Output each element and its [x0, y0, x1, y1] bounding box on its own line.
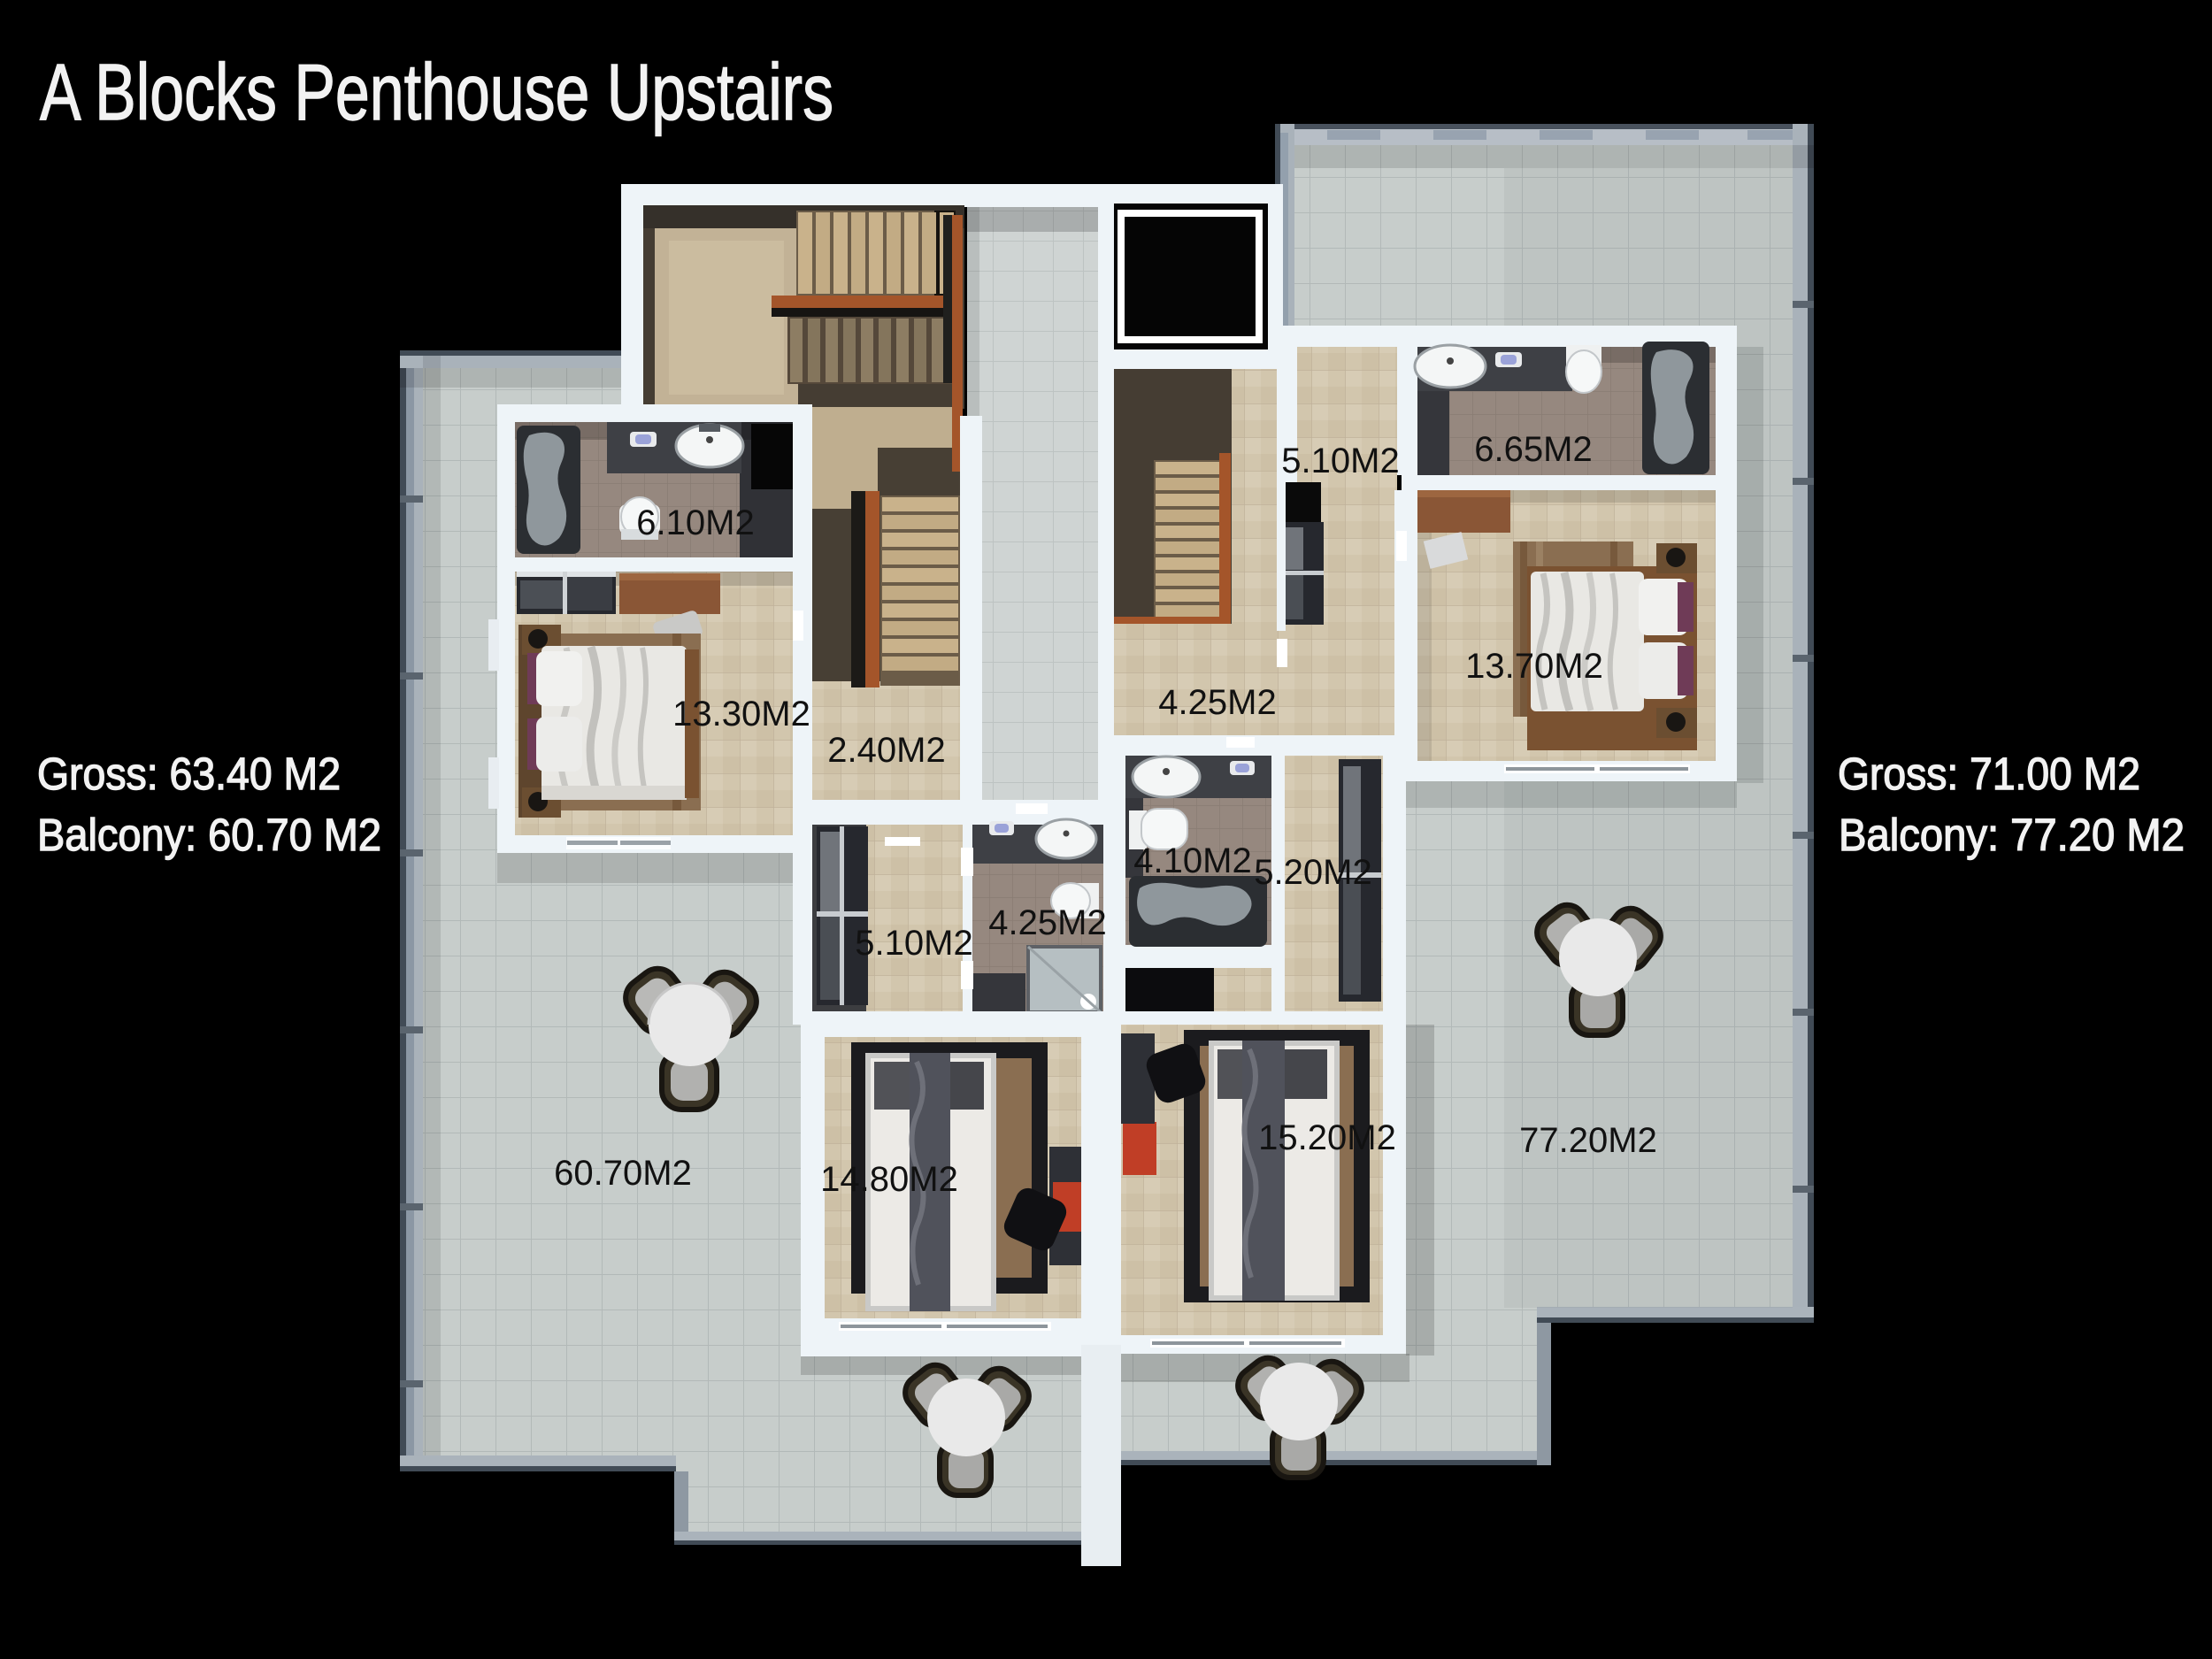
svg-text:6.65M2: 6.65M2 [1474, 430, 1592, 469]
svg-text:Gross: 63.40 M2: Gross: 63.40 M2 [37, 749, 341, 799]
svg-text:2.40M2: 2.40M2 [827, 731, 945, 770]
svg-text:14.80M2: 14.80M2 [820, 1160, 958, 1199]
svg-text:13.30M2: 13.30M2 [672, 695, 810, 733]
svg-text:5.20M2: 5.20M2 [1254, 853, 1371, 892]
svg-text:5.10M2: 5.10M2 [855, 924, 972, 963]
svg-text:Balcony: 77.20 M2: Balcony: 77.20 M2 [1839, 810, 2185, 860]
svg-text:4.25M2: 4.25M2 [1158, 683, 1276, 722]
svg-text:6.10M2: 6.10M2 [636, 503, 754, 542]
svg-text:5.10M2: 5.10M2 [1281, 442, 1399, 480]
svg-text:4.10M2: 4.10M2 [1133, 841, 1251, 880]
svg-text:Balcony: 60.70 M2: Balcony: 60.70 M2 [37, 810, 381, 860]
svg-text:77.20M2: 77.20M2 [1519, 1121, 1657, 1160]
svg-text:15.20M2: 15.20M2 [1258, 1118, 1396, 1157]
svg-text:4.25M2: 4.25M2 [988, 903, 1106, 942]
svg-text:A Blocks Penthouse Upstairs: A Blocks Penthouse Upstairs [40, 49, 833, 137]
svg-text:Gross: 71.00 M2: Gross: 71.00 M2 [1838, 749, 2140, 799]
svg-text:60.70M2: 60.70M2 [554, 1154, 692, 1193]
svg-text:13.70M2: 13.70M2 [1465, 647, 1603, 686]
